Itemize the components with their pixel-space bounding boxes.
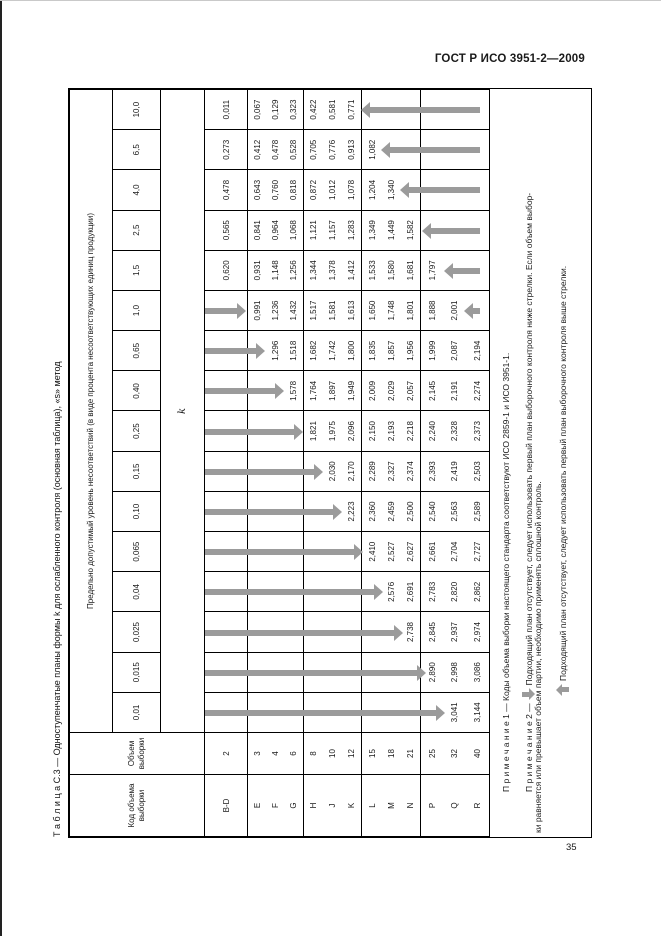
value-cell: 1,1211,1571,283 — [304, 210, 362, 250]
k-value: G — [285, 775, 303, 836]
k-value — [422, 130, 444, 169]
value-cell — [248, 692, 304, 732]
k-value — [206, 653, 247, 692]
k-value: 1,949 — [342, 371, 361, 410]
k-value — [249, 693, 267, 732]
k-value — [382, 90, 401, 129]
k-value: 1,256 — [285, 251, 303, 290]
value-cell: 1,2961,518 — [248, 331, 304, 371]
k-value: 0,412 — [249, 130, 267, 169]
k-value: 1,378 — [323, 251, 342, 290]
table-frame: Код объема выборки Объем выборки Предель… — [68, 88, 592, 838]
code-cell: HJK — [304, 775, 362, 837]
value-cell — [205, 411, 248, 451]
k-value — [249, 572, 267, 611]
aql-header-5: 0,10 — [113, 491, 161, 531]
k-value — [206, 452, 247, 491]
k-value — [323, 572, 342, 611]
k-value: 2,563 — [444, 492, 466, 531]
k-value: 2,360 — [363, 492, 382, 531]
k-value: 1,956 — [401, 331, 420, 370]
k-value: 1,748 — [382, 291, 401, 330]
value-cell — [421, 130, 490, 170]
k-value — [285, 653, 303, 692]
k-value: 2,419 — [444, 452, 466, 491]
value-cell: 2,738 — [362, 612, 421, 652]
value-cell: 2,0092,0292,057 — [362, 371, 421, 411]
value-cell: 1,9992,0872,194 — [421, 331, 490, 371]
k-value: 2,001 — [444, 291, 466, 330]
k-value: 1,650 — [363, 291, 382, 330]
k-value: 0,323 — [285, 90, 303, 129]
value-cell — [205, 652, 248, 692]
k-value: 0,528 — [285, 130, 303, 169]
size-cell: 81012 — [304, 733, 362, 775]
value-cell — [248, 572, 304, 612]
value-cell: 1,578 — [248, 371, 304, 411]
k-value: 1,082 — [363, 130, 382, 169]
value-cell — [205, 572, 248, 612]
value-cell: 0,8410,9641,068 — [248, 210, 304, 250]
k-value: 2,193 — [382, 412, 401, 451]
value-cell: 1,2041,340 — [362, 170, 421, 210]
aql-header-12: 2,5 — [113, 210, 161, 250]
code-cell: LMN — [362, 775, 421, 837]
k-value: 2,218 — [401, 412, 420, 451]
k-value: 1,412 — [342, 251, 361, 290]
k-value: 2,057 — [401, 371, 420, 410]
k-value: 1,148 — [267, 251, 285, 290]
k-value — [267, 371, 285, 410]
k-value: 2,096 — [342, 412, 361, 451]
k-value: E — [249, 775, 267, 836]
k-value: 0,913 — [342, 130, 361, 169]
k-value: 2,627 — [401, 532, 420, 571]
k-value: 2,087 — [444, 331, 466, 370]
group-row-B-D: B-D20,6200,5650,4780,2730,011 — [205, 90, 248, 837]
k-value: 2,661 — [422, 532, 444, 571]
up-arrow-icon — [556, 684, 569, 696]
k-value — [342, 572, 361, 611]
k-value: 8 — [305, 733, 324, 774]
k-value: 0,818 — [285, 170, 303, 209]
value-cell: 2,4102,5272,627 — [362, 532, 421, 572]
group-row-HJK: HJK810122,2232,0302,1701,8211,9752,0961,… — [304, 90, 362, 837]
k-value: 1,449 — [382, 211, 401, 250]
k-value — [206, 371, 247, 410]
k-value: 0,422 — [305, 90, 324, 129]
value-cell: 1,3441,3781,412 — [304, 250, 362, 290]
k-value: 2 — [206, 733, 247, 774]
k-value — [382, 653, 401, 692]
k-value — [342, 693, 361, 732]
k-value: 0,760 — [267, 170, 285, 209]
k-value: 1,157 — [323, 211, 342, 250]
k-value: 32 — [444, 733, 466, 774]
k-value: 0,643 — [249, 170, 267, 209]
k-value — [422, 693, 444, 732]
k-value — [323, 653, 342, 692]
k-value — [382, 693, 401, 732]
note-1: П р и м е ч а н и е 1 — Коды объема выбо… — [501, 353, 511, 792]
k-value — [285, 452, 303, 491]
k-value: 1,888 — [422, 291, 444, 330]
k-value: 1,897 — [323, 371, 342, 410]
k-value: 0,273 — [206, 130, 247, 169]
k-value: 2,009 — [363, 371, 382, 410]
value-cell: 0,0670,1290,323 — [248, 90, 304, 130]
k-value — [342, 532, 361, 571]
table-head: Код объема выборки Объем выборки Предель… — [70, 90, 205, 837]
k-value — [363, 653, 382, 692]
k-value — [249, 331, 267, 370]
k-value: 1,800 — [342, 331, 361, 370]
value-cell: 0,4120,4780,528 — [248, 130, 304, 170]
k-value: 0,771 — [342, 90, 361, 129]
k-value — [305, 532, 324, 571]
k-value — [363, 693, 382, 732]
value-cell — [421, 210, 490, 250]
value-cell: 1,7641,8971,949 — [304, 371, 362, 411]
value-cell: 0,273 — [205, 130, 248, 170]
value-cell: 0,620 — [205, 250, 248, 290]
k-value — [267, 532, 285, 571]
k-value — [422, 170, 444, 209]
k-label-cell: k — [161, 90, 205, 733]
value-cell: 0,7050,7760,913 — [304, 130, 362, 170]
page-number: 35 — [566, 842, 577, 853]
k-value: 2,890 — [422, 653, 444, 692]
k-value — [285, 532, 303, 571]
k-value — [363, 90, 382, 129]
k-value: L — [363, 775, 382, 836]
k-value: P — [422, 775, 444, 836]
k-value — [249, 371, 267, 410]
k-value — [267, 572, 285, 611]
k-value — [305, 693, 324, 732]
aql-header-11: 1,5 — [113, 250, 161, 290]
k-value: 1,533 — [363, 251, 382, 290]
value-cell — [205, 451, 248, 491]
note-2-up-rule: Подходящий план отсутствует, следует исп… — [553, 266, 568, 699]
value-cell: 3,0413,144 — [421, 692, 490, 732]
aql-header-15: 10,0 — [113, 90, 161, 130]
k-value — [267, 412, 285, 451]
table-title: Т а б л и ц а С.3 — Одноступенчатые план… — [52, 85, 68, 838]
k-value — [249, 653, 267, 692]
k-value: 2,030 — [323, 452, 342, 491]
k-value: 1,578 — [285, 371, 303, 410]
k-value: 1,432 — [285, 291, 303, 330]
value-cell: 2,8452,9372,974 — [421, 612, 490, 652]
aql-header-10: 1,0 — [113, 290, 161, 330]
k-value — [401, 653, 420, 692]
k-value — [285, 492, 303, 531]
k-value — [401, 693, 420, 732]
aql-header-0: 0,01 — [113, 692, 161, 732]
k-value: 6 — [285, 733, 303, 774]
value-cell: 2,2892,3272,374 — [362, 451, 421, 491]
value-cell: 1,8882,001 — [421, 290, 490, 330]
k-value: 1,613 — [342, 291, 361, 330]
value-cell — [248, 612, 304, 652]
k-value: Q — [444, 775, 466, 836]
k-value: 12 — [342, 733, 361, 774]
k-value — [444, 130, 466, 169]
k-value — [206, 412, 247, 451]
size-cell: 253240 — [421, 733, 490, 775]
k-value: 2,500 — [401, 492, 420, 531]
k-value — [267, 612, 285, 651]
size-cell: 2 — [205, 733, 248, 775]
value-cell: 1,6501,7481,801 — [362, 290, 421, 330]
k-value: 21 — [401, 733, 420, 774]
value-cell: 1,797 — [421, 250, 490, 290]
size-cell: 346 — [248, 733, 304, 775]
k-value — [285, 693, 303, 732]
k-value: 2,240 — [422, 412, 444, 451]
code-cell: EFG — [248, 775, 304, 837]
k-value: 1,580 — [382, 251, 401, 290]
k-value: 1,801 — [401, 291, 420, 330]
k-value: 0,705 — [305, 130, 324, 169]
value-cell — [362, 692, 421, 732]
k-value — [422, 211, 444, 250]
k-value — [206, 331, 247, 370]
k-value: 2,998 — [444, 653, 466, 692]
value-cell: 2,3932,4192,503 — [421, 451, 490, 491]
value-cell: 1,5331,5801,681 — [362, 250, 421, 290]
k-value: 1,975 — [323, 412, 342, 451]
k-value: 1,296 — [267, 331, 285, 370]
scanned-standard-page: { "page": { "standard_header": "ГОСТ Р И… — [0, 0, 661, 936]
k-value: 2,738 — [401, 612, 420, 651]
size-column-header: Объем выборки — [70, 733, 205, 775]
plans-table: Код объема выборки Объем выборки Предель… — [69, 89, 490, 837]
k-value: J — [323, 775, 342, 836]
value-cell: 0,8721,0121,078 — [304, 170, 362, 210]
k-value: 0,841 — [249, 211, 267, 250]
k-value: 1,349 — [363, 211, 382, 250]
k-value: 3 — [249, 733, 267, 774]
k-value: 1,340 — [382, 170, 401, 209]
aql-header-2: 0,025 — [113, 612, 161, 652]
k-value: 0,011 — [206, 90, 247, 129]
value-cell: 2,1502,1932,218 — [362, 411, 421, 451]
value-cell: 1,8211,9752,096 — [304, 411, 362, 451]
k-value — [206, 532, 247, 571]
k-value — [267, 693, 285, 732]
notes-block: П р и м е ч а н и е 1 — Коды объема выбо… — [486, 89, 591, 837]
k-value: 0,067 — [249, 90, 267, 129]
k-value: 0,931 — [249, 251, 267, 290]
aql-header-13: 4,0 — [113, 170, 161, 210]
group-row-EFG: EFG3461,5781,2961,5180,9911,2361,4320,93… — [248, 90, 304, 837]
k-value — [206, 612, 247, 651]
k-value: 0,620 — [206, 251, 247, 290]
k-value: 1,012 — [323, 170, 342, 209]
k-value — [382, 130, 401, 169]
value-cell — [205, 371, 248, 411]
k-value — [249, 492, 267, 531]
value-cell: 0,011 — [205, 90, 248, 130]
value-cell — [205, 331, 248, 371]
k-value: 2,459 — [382, 492, 401, 531]
k-value — [206, 492, 247, 531]
value-cell: 0,478 — [205, 170, 248, 210]
value-cell: 2,0302,170 — [304, 451, 362, 491]
k-value: 3,041 — [444, 693, 466, 732]
k-value: 2,393 — [422, 452, 444, 491]
k-value: 2,191 — [444, 371, 466, 410]
value-cell — [304, 692, 362, 732]
group-row-LMN: LMN1518212,7382,5762,6912,4102,5272,6272… — [362, 90, 421, 837]
k-value: 2,029 — [382, 371, 401, 410]
value-cell — [304, 532, 362, 572]
k-value — [382, 612, 401, 651]
k-value: 2,527 — [382, 532, 401, 571]
value-cell — [248, 491, 304, 531]
k-value — [206, 291, 247, 330]
k-value — [249, 412, 267, 451]
k-value: F — [267, 775, 285, 836]
k-value: 0,872 — [305, 170, 324, 209]
k-value: N — [401, 775, 420, 836]
k-value: 1,517 — [305, 291, 324, 330]
k-value: 1,581 — [323, 291, 342, 330]
k-value — [305, 492, 324, 531]
k-value: 0,776 — [323, 130, 342, 169]
k-value: 15 — [363, 733, 382, 774]
value-cell — [205, 491, 248, 531]
value-cell — [304, 612, 362, 652]
k-value: 0,964 — [267, 211, 285, 250]
value-cell: 2,6612,7042,727 — [421, 532, 490, 572]
k-value — [342, 653, 361, 692]
k-value — [363, 612, 382, 651]
value-cell: 2,3602,4592,500 — [362, 491, 421, 531]
value-cell — [248, 652, 304, 692]
k-value — [444, 170, 466, 209]
k-value: 2,845 — [422, 612, 444, 651]
k-value: H — [305, 775, 324, 836]
aql-header-3: 0,04 — [113, 572, 161, 612]
k-value: K — [342, 775, 361, 836]
k-value: 2,783 — [422, 572, 444, 611]
k-value: 0,129 — [267, 90, 285, 129]
value-cell: 0,6430,7600,818 — [248, 170, 304, 210]
k-value — [342, 612, 361, 651]
k-value: 1,236 — [267, 291, 285, 330]
k-value: 2,374 — [401, 452, 420, 491]
note-2-continuation-text: ки равняется или превышает объем партии,… — [533, 481, 543, 833]
k-value — [285, 572, 303, 611]
table-body: B-D20,6200,5650,4780,2730,011EFG3461,578… — [205, 90, 490, 837]
aql-values-row: 0,010,0150,0250,040,0650,100,150,250,400… — [113, 90, 161, 837]
k-value: 2,327 — [382, 452, 401, 491]
k-value: 4 — [267, 733, 285, 774]
size-cell: 151821 — [362, 733, 421, 775]
k-value — [422, 90, 444, 129]
k-value — [323, 532, 342, 571]
value-cell — [248, 532, 304, 572]
code-cell: PQR — [421, 775, 490, 837]
k-value: 2,691 — [401, 572, 420, 611]
k-value — [305, 572, 324, 611]
k-value: 1,797 — [422, 251, 444, 290]
k-value: 2,223 — [342, 492, 361, 531]
value-cell — [362, 90, 421, 130]
k-value — [305, 612, 324, 651]
value-cell — [421, 90, 490, 130]
value-cell — [362, 652, 421, 692]
value-cell: 1,6821,7421,800 — [304, 331, 362, 371]
k-value: 0,581 — [323, 90, 342, 129]
aql-header-6: 0,15 — [113, 451, 161, 491]
k-value: 1,582 — [401, 211, 420, 250]
value-cell: 1,082 — [362, 130, 421, 170]
k-value — [249, 452, 267, 491]
k-value — [267, 653, 285, 692]
k-value: 1,764 — [305, 371, 324, 410]
k-value: 1,518 — [285, 331, 303, 370]
aql-header-14: 6,5 — [113, 130, 161, 170]
k-value: 0,565 — [206, 211, 247, 250]
k-value — [444, 251, 466, 290]
value-cell — [205, 612, 248, 652]
aql-banner: Предельно допустимый уровень несоответст… — [70, 90, 113, 733]
standard-header: ГОСТ Р ИСО 3951-2—2009 — [435, 53, 585, 65]
k-value — [249, 612, 267, 651]
k-value: 1,857 — [382, 331, 401, 370]
k-value: 10 — [323, 733, 342, 774]
value-cell — [304, 572, 362, 612]
value-cell: 2,1452,1912,274 — [421, 371, 490, 411]
rotated-landscape-content: Т а б л и ц а С.3 — Одноступенчатые план… — [52, 85, 592, 838]
k-value: 1,835 — [363, 331, 382, 370]
value-cell: 2,5762,691 — [362, 572, 421, 612]
k-value — [323, 693, 342, 732]
k-value: 2,576 — [382, 572, 401, 611]
k-value — [285, 412, 303, 451]
k-value: 18 — [382, 733, 401, 774]
value-cell: 0,9911,2361,432 — [248, 290, 304, 330]
k-value: 25 — [422, 733, 444, 774]
value-cell — [248, 451, 304, 491]
k-value: 2,410 — [363, 532, 382, 571]
k-value: 1,068 — [285, 211, 303, 250]
value-cell — [205, 290, 248, 330]
k-value: 1,283 — [342, 211, 361, 250]
k-value — [363, 572, 382, 611]
scan-edge-top — [0, 0, 661, 1]
k-value — [305, 452, 324, 491]
k-value: B-D — [206, 775, 247, 836]
k-value: 1,681 — [401, 251, 420, 290]
k-value — [401, 170, 420, 209]
k-value: 1,742 — [323, 331, 342, 370]
k-value — [267, 492, 285, 531]
note-1-text: П р и м е ч а н и е 1 — Коды объема выбо… — [501, 353, 511, 792]
value-cell: 2,2402,3282,373 — [421, 411, 490, 451]
k-value: 1,078 — [342, 170, 361, 209]
value-cell — [248, 411, 304, 451]
group-row-PQR: PQR2532403,0413,1442,8902,9983,0862,8452… — [421, 90, 490, 837]
k-value: 2,820 — [444, 572, 466, 611]
k-value: 0,991 — [249, 291, 267, 330]
k-value: 0,478 — [206, 170, 247, 209]
k-value — [267, 452, 285, 491]
